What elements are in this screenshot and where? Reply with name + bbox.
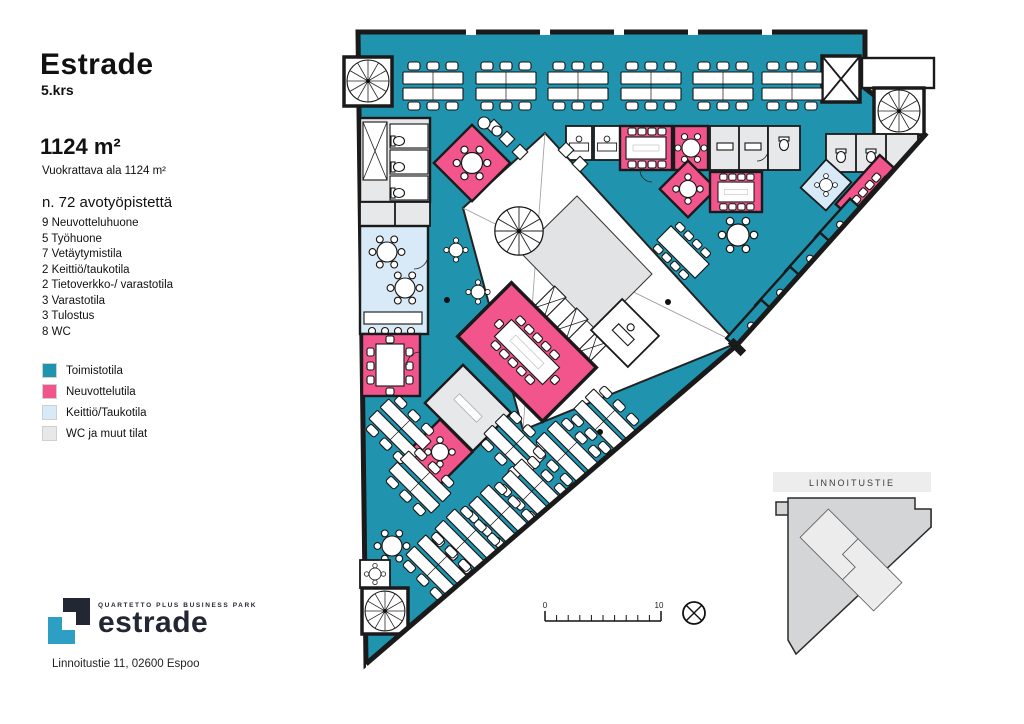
meeting-room-top-d: [710, 172, 762, 212]
wc-block-left: [360, 118, 430, 202]
floor-plan: LINNOITUSTIE 0 10: [0, 0, 1024, 724]
stairwell-core: [495, 207, 543, 255]
scale-end-label: 10: [655, 601, 664, 610]
street-label: LINNOITUSTIE: [809, 478, 895, 488]
elevator-shaft-top-right: [822, 56, 860, 102]
storage-room-left: [360, 202, 430, 226]
stairwell-bottom-tip: [362, 588, 408, 634]
wc-room-top: [768, 126, 800, 170]
storage-rooms-top: [710, 126, 768, 170]
meeting-room-top-a: [620, 126, 672, 170]
annex-top-right: [862, 58, 934, 88]
meeting-room-left: [362, 334, 420, 396]
corner-room-bottom: [360, 560, 390, 588]
kitchen-break-room: [360, 226, 428, 335]
scale-start-label: 0: [543, 601, 548, 610]
stairwell-top-right: [874, 88, 924, 135]
stairwell-top-left: [344, 57, 392, 106]
